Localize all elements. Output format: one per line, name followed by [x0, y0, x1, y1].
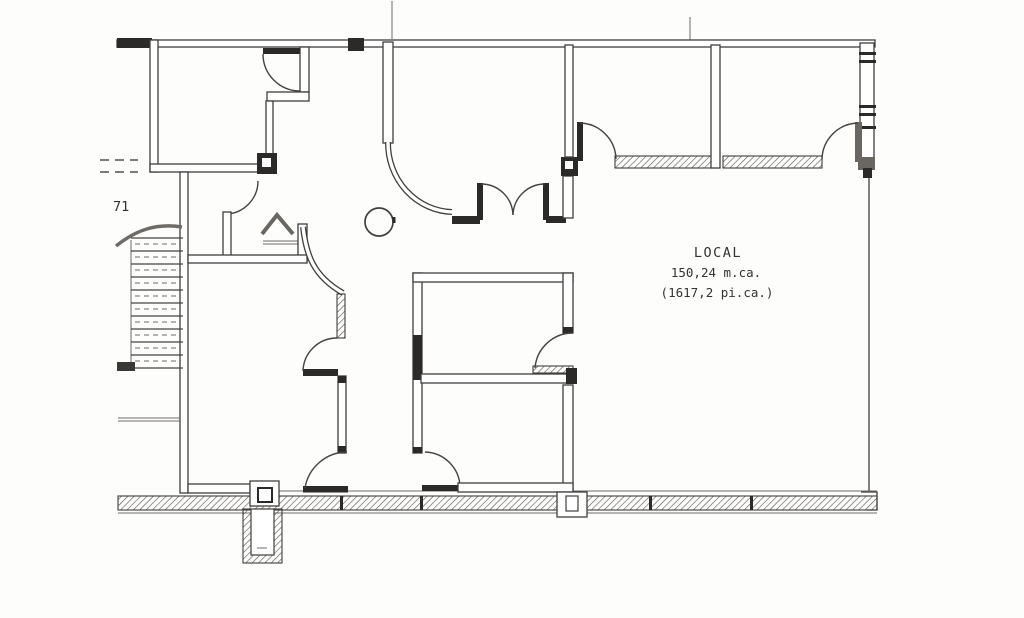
vestibule	[365, 42, 578, 236]
wall-joint-tick	[340, 496, 343, 510]
wall-joint-tick	[420, 496, 423, 510]
stair-number-label: 71	[113, 199, 129, 215]
wall-segment	[150, 164, 273, 172]
wall-segment	[267, 92, 309, 101]
door-leaf	[855, 122, 862, 162]
top-wall	[117, 40, 875, 47]
right-wall-junction-cap	[863, 168, 872, 178]
door-swing-arc	[580, 123, 616, 159]
wall-junction	[566, 368, 577, 384]
wall-segment	[383, 42, 393, 143]
door-swing-arc	[303, 338, 337, 371]
top-wall-solid-segment	[117, 38, 152, 48]
offices	[565, 45, 862, 168]
curved-wall	[303, 227, 343, 293]
door-leaf	[422, 485, 460, 491]
door-swing-arc	[425, 452, 460, 487]
door-swing-arc	[513, 184, 545, 215]
left-room	[188, 227, 348, 493]
top-wall-column	[348, 38, 364, 51]
wall-joint-tick	[649, 496, 652, 510]
wall-segment	[563, 385, 573, 490]
door-swing-arc	[535, 333, 573, 368]
room-label-area-imperial: (1617,2 pi.ca.)	[661, 285, 774, 300]
top-left-room	[100, 40, 309, 174]
floor-plan-page: LOCAL 150,24 m.ca. (1617,2 pi.ca.) 71	[0, 0, 1024, 618]
room-label-title: LOCAL	[694, 245, 742, 261]
door-leaf	[263, 48, 300, 54]
wall-junction-inner	[565, 161, 573, 169]
door-swing-arc	[263, 54, 300, 91]
door-leaf	[303, 369, 338, 376]
stairwell	[116, 226, 183, 421]
wall-segment	[337, 294, 345, 338]
wall-segment	[150, 40, 158, 172]
wall-joint-tick	[750, 496, 753, 510]
wall-end-cap	[563, 327, 573, 333]
floor-plan-drawing: LOCAL 150,24 m.ca. (1617,2 pi.ca.) 71	[0, 0, 1024, 618]
door-swing-arc	[481, 184, 513, 215]
wall-segment	[563, 273, 573, 333]
wall-end-cap	[413, 447, 422, 453]
mullion-tick	[859, 52, 876, 55]
door-swing-arc	[305, 452, 347, 488]
mullion-tick	[859, 60, 876, 63]
column-circle	[365, 208, 393, 236]
stair-curved-edge	[116, 226, 182, 246]
mullion-tick	[859, 113, 876, 116]
window-sill	[723, 156, 822, 168]
column-tick	[393, 217, 396, 223]
door-jamb	[452, 216, 480, 224]
curved-wall-inner	[388, 142, 452, 212]
door-leaf	[577, 122, 583, 161]
wall-segment	[338, 376, 346, 453]
wall-segment	[711, 45, 720, 168]
door-swing-arc	[822, 123, 858, 159]
room-label-area-metric: 150,24 m.ca.	[671, 265, 761, 280]
interior-rooms	[413, 273, 587, 517]
wall-segment	[563, 176, 573, 218]
wall-segment	[458, 483, 573, 492]
door-leaf	[303, 486, 348, 493]
wall-segment	[565, 45, 573, 157]
wall-solid-segment	[413, 335, 422, 380]
wall-segment	[413, 273, 573, 282]
wall-segment	[300, 47, 309, 92]
door-swing-arc	[225, 181, 258, 214]
wall-end-cap	[338, 376, 346, 383]
door-leaf	[477, 183, 483, 220]
wall-segment	[223, 212, 231, 260]
window-sill	[615, 156, 712, 168]
shelf-chevron-icon	[262, 215, 293, 234]
wall-segment	[188, 255, 307, 263]
closet	[188, 181, 307, 263]
wall-segment	[421, 374, 573, 383]
door-leaf	[543, 183, 549, 220]
mullion-tick	[859, 105, 876, 108]
left-wall	[180, 172, 188, 493]
bottom-wall	[118, 496, 877, 510]
wall-segment	[188, 484, 250, 493]
wall-junction-inner	[262, 158, 271, 167]
stair-landing-wall	[117, 362, 135, 371]
